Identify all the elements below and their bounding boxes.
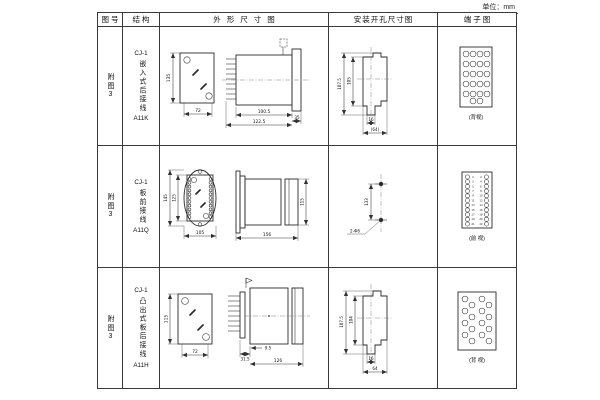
dim-front-height-a11q: 145: [163, 194, 168, 202]
figure-no-row1: 附图3: [105, 73, 115, 100]
structure-model-row2: CJ-1: [134, 179, 147, 186]
dim-front-width-a11q: 105: [196, 230, 205, 236]
mounting-drawing-a11k: 107.5 105 16 (64): [329, 27, 437, 145]
figure-no-cell-row3: 附图3: [98, 268, 122, 388]
outline-drawing-a11h: 115 72: [160, 268, 328, 388]
terminal-cell-row1: (背视): [438, 27, 516, 145]
header-terminal-diagram: 端子图: [438, 13, 516, 26]
svg-text:18: 18: [479, 213, 483, 217]
svg-text:14: 14: [479, 203, 483, 207]
dimension-table: 图号 结构 外形尺寸图 安装开孔尺寸图 端子图 附图3 CJ-1 嵌入式后接线 …: [97, 12, 517, 389]
mounting-cell-row1: 107.5 105 16 (64): [329, 27, 437, 145]
mounting-drawing-a11q: 133 2-Φ6: [329, 146, 437, 267]
terminal-cell-row2: 12 34 56 78 910 1112 1314 1516 1718 1920…: [438, 146, 516, 267]
svg-text:22: 22: [479, 222, 483, 226]
mounting-drawing-a11h: 107.5 104 16 64: [329, 268, 437, 388]
terminal-cell-row3: (背 视): [438, 268, 516, 388]
drawing-sheet: 单位：mm 图号 结构 外形尺寸图 安装开孔尺寸图 端子图 附图3 CJ-1 嵌…: [0, 0, 600, 400]
structure-cell-row3: CJ-1 凸出式板后接线 A11H: [123, 268, 159, 388]
svg-text:5: 5: [472, 184, 474, 188]
dim-side-total: 122.5: [253, 119, 266, 125]
structure-cell-row1: CJ-1 嵌入式后接线 A11K: [123, 27, 159, 145]
svg-text:9: 9: [472, 194, 474, 198]
terminal-caption-row3: (背 视): [469, 356, 485, 364]
structure-model-row1: CJ-1: [134, 50, 147, 57]
figure-no-cell-row1: 附图3: [98, 27, 122, 145]
front-view-a11h: 115 72: [164, 294, 213, 358]
terminal-caption-row1: (背视): [469, 113, 484, 121]
outline-cell-row3: 115 72: [160, 268, 328, 388]
structure-code-row3: A11H: [133, 362, 148, 369]
terminal-block-a11h: [458, 292, 496, 350]
structure-code-row2: A11Q: [133, 227, 149, 234]
cutout-profile-a11h: 107.5 104 16 64: [339, 284, 393, 374]
header-mounting-hole-dims: 安装开孔尺寸图: [329, 13, 437, 26]
dim-side-length-a11h: 126: [274, 358, 283, 364]
svg-text:21: 21: [471, 222, 475, 226]
dim-front-inner-height-a11q: 125: [172, 194, 177, 202]
dim-side-height-a11q: 115: [300, 198, 305, 206]
dim-front-height: 135: [166, 74, 172, 83]
structure-cell-row2: CJ-1 板前接线 A11Q: [123, 146, 159, 267]
header-figure-no: 图号: [98, 13, 122, 26]
svg-text:6: 6: [480, 184, 482, 188]
dim-slot-width-a11h: 16: [368, 356, 374, 361]
svg-text:19: 19: [471, 217, 475, 221]
terminal-diagram-a11k: (背视): [438, 27, 516, 145]
svg-text:10: 10: [479, 194, 483, 198]
side-view-a11q: 156 115: [236, 171, 309, 241]
dim-slot-width: 16: [368, 117, 374, 122]
dim-cutout-outer-width-a11h: 64: [372, 366, 378, 371]
svg-text:8: 8: [480, 189, 482, 193]
svg-text:13: 13: [471, 203, 475, 207]
header-structure: 结构: [123, 13, 159, 26]
dim-side-length-a11q: 156: [263, 232, 272, 238]
terminal-diagram-a11h: (背 视): [438, 268, 516, 388]
svg-text:4: 4: [480, 180, 482, 184]
hole-spec-label: 2-Φ6: [350, 229, 360, 234]
dim-pin-depth-a11h: 31.5: [240, 357, 250, 362]
structure-type-row3: 凸出式板后接线: [136, 297, 146, 359]
dim-side-flange: 35: [294, 115, 300, 120]
dim-front-width-a11h: 72: [192, 349, 198, 355]
dim-front-width: 72: [195, 108, 201, 114]
dim-hole-spacing: 133: [364, 198, 369, 206]
dim-cutout-outer-height: 107.5: [337, 78, 342, 90]
side-view-a11h: 31.5 9.5 126: [228, 278, 310, 367]
terminal-caption-row2: (前 视): [469, 234, 485, 242]
dim-side-body: 100.5: [258, 109, 271, 115]
side-view-a11k: 100.5 35 122.5: [222, 39, 310, 128]
structure-type-row2: 板前接线: [136, 189, 146, 224]
terminal-block-a11q: 12 34 56 78 910 1112 1314 1516 1718 1920…: [462, 172, 492, 228]
front-view-a11q: 145 125 105: [163, 170, 216, 239]
outline-drawing-a11k: 135 72: [160, 27, 328, 145]
dim-cutout-outer-width: (64): [371, 127, 380, 132]
front-view-a11k: 135 72: [166, 53, 214, 117]
cutout-profile-a11k: 107.5 105 16 (64): [337, 47, 393, 135]
terminal-block-a11k: [460, 47, 492, 107]
dim-front-height-a11h: 115: [164, 315, 170, 324]
svg-text:7: 7: [472, 189, 474, 193]
structure-model-row3: CJ-1: [134, 287, 147, 294]
dim-offset-a11h: 9.5: [265, 346, 272, 351]
figure-no-row3: 附图3: [105, 315, 115, 342]
svg-text:17: 17: [471, 213, 475, 217]
mounting-cell-row3: 107.5 104 16 64: [329, 268, 437, 388]
outline-drawing-a11q: 145 125 105: [160, 146, 328, 267]
terminal-diagram-a11q: 12 34 56 78 910 1112 1314 1516 1718 1920…: [438, 146, 516, 267]
figure-no-cell-row2: 附图3: [98, 146, 122, 267]
svg-text:16: 16: [479, 208, 483, 212]
svg-text:11: 11: [471, 198, 475, 202]
svg-text:20: 20: [479, 217, 483, 221]
hole-layout-a11q: 133 2-Φ6: [347, 174, 387, 234]
outline-cell-row1: 135 72: [160, 27, 328, 145]
svg-text:3: 3: [472, 180, 474, 184]
figure-no-row2: 附图3: [105, 193, 115, 220]
dim-cutout-inner-height-a11h: 104: [349, 316, 354, 324]
dim-cutout-inner-height: 105: [347, 77, 352, 85]
svg-text:1: 1: [472, 175, 474, 179]
header-outline-dims: 外形尺寸图: [160, 13, 328, 26]
structure-type-row1: 嵌入式后接线: [136, 60, 146, 113]
svg-text:2: 2: [480, 175, 482, 179]
dim-cutout-outer-height-a11h: 107.5: [339, 316, 344, 328]
structure-code-row1: A11K: [134, 115, 149, 122]
svg-text:15: 15: [471, 208, 475, 212]
mounting-cell-row2: 133 2-Φ6: [329, 146, 437, 267]
outline-cell-row2: 145 125 105: [160, 146, 328, 267]
svg-text:12: 12: [479, 198, 483, 202]
